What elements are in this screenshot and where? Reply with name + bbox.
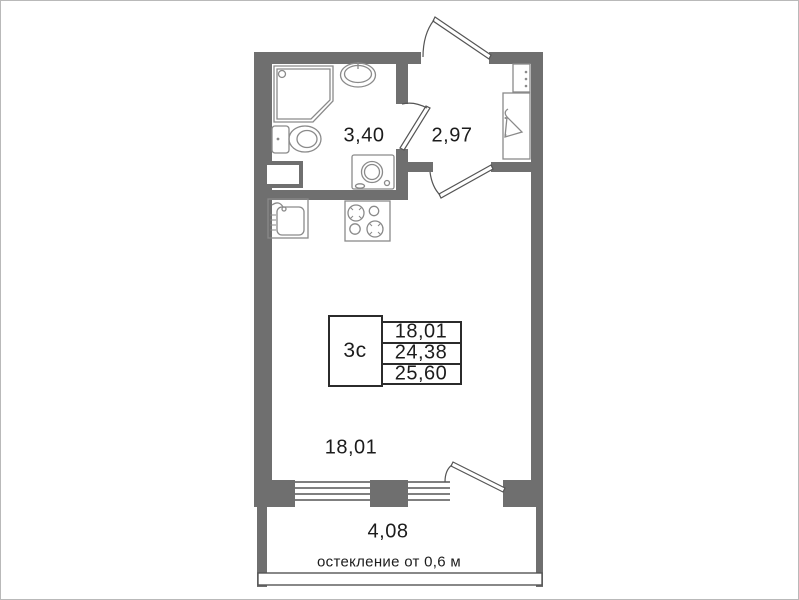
- floorplan: 3,40 2,97 18,01 4,08 остекление от 0,6 м…: [0, 0, 799, 600]
- balcony-door-swing-arc: [445, 465, 452, 482]
- info-table-value-3: 25,60: [395, 363, 448, 386]
- window-pier-left: [262, 480, 295, 507]
- living-room-area-label: 18,01: [325, 437, 378, 460]
- bathroom-door: [400, 103, 430, 150]
- window-left: [295, 482, 370, 500]
- balcony-glazing-note: остекление от 0,6 м: [317, 554, 461, 571]
- bathroom-area-label: 3,40: [344, 125, 385, 148]
- info-table-value-2: 24,38: [395, 342, 448, 365]
- balcony-door: [445, 462, 505, 492]
- bathroom-door-leaf: [400, 106, 430, 150]
- window-pier-middle: [370, 480, 408, 507]
- entry-door: [423, 17, 491, 59]
- entry-door-swing-arc: [423, 20, 434, 57]
- toilet: [272, 126, 321, 153]
- bathroom-sink: [341, 62, 376, 87]
- room-door-leaf: [439, 165, 493, 198]
- washing-machine: [352, 155, 394, 189]
- shower-cabin: [274, 66, 333, 122]
- vent-shaft: [265, 163, 301, 186]
- hall-bottom-wall-left: [396, 162, 433, 172]
- balcony-door-leaf: [451, 462, 505, 492]
- walls: [254, 52, 543, 587]
- unit-type-label: 3с: [343, 339, 366, 363]
- entry-door-leaf: [433, 17, 491, 59]
- hanger-icon: [505, 109, 522, 137]
- room-door-swing-arc: [430, 172, 440, 195]
- right-wall: [531, 52, 543, 482]
- hallway-area-label: 2,97: [432, 125, 473, 148]
- kitchen-sink: [268, 199, 308, 238]
- top-wall-left: [254, 52, 421, 64]
- bath-hall-wall-upper: [396, 60, 408, 104]
- balcony-area-label: 4,08: [368, 521, 409, 544]
- window-right: [408, 482, 450, 500]
- floorplan-drawing: [0, 0, 799, 600]
- wardrobe: [503, 64, 530, 159]
- stove: [345, 201, 390, 241]
- bathroom-door-swing-arc: [402, 103, 427, 108]
- shower-drain-icon: [279, 71, 286, 78]
- room-door: [430, 165, 493, 198]
- info-table-value-1: 18,01: [395, 321, 448, 344]
- wardrobe-top-cabinet: [513, 64, 530, 92]
- hall-bottom-wall-right: [491, 162, 543, 172]
- left-wall: [254, 52, 272, 507]
- balcony-glazing: [258, 573, 542, 585]
- window-pier-right: [503, 480, 543, 507]
